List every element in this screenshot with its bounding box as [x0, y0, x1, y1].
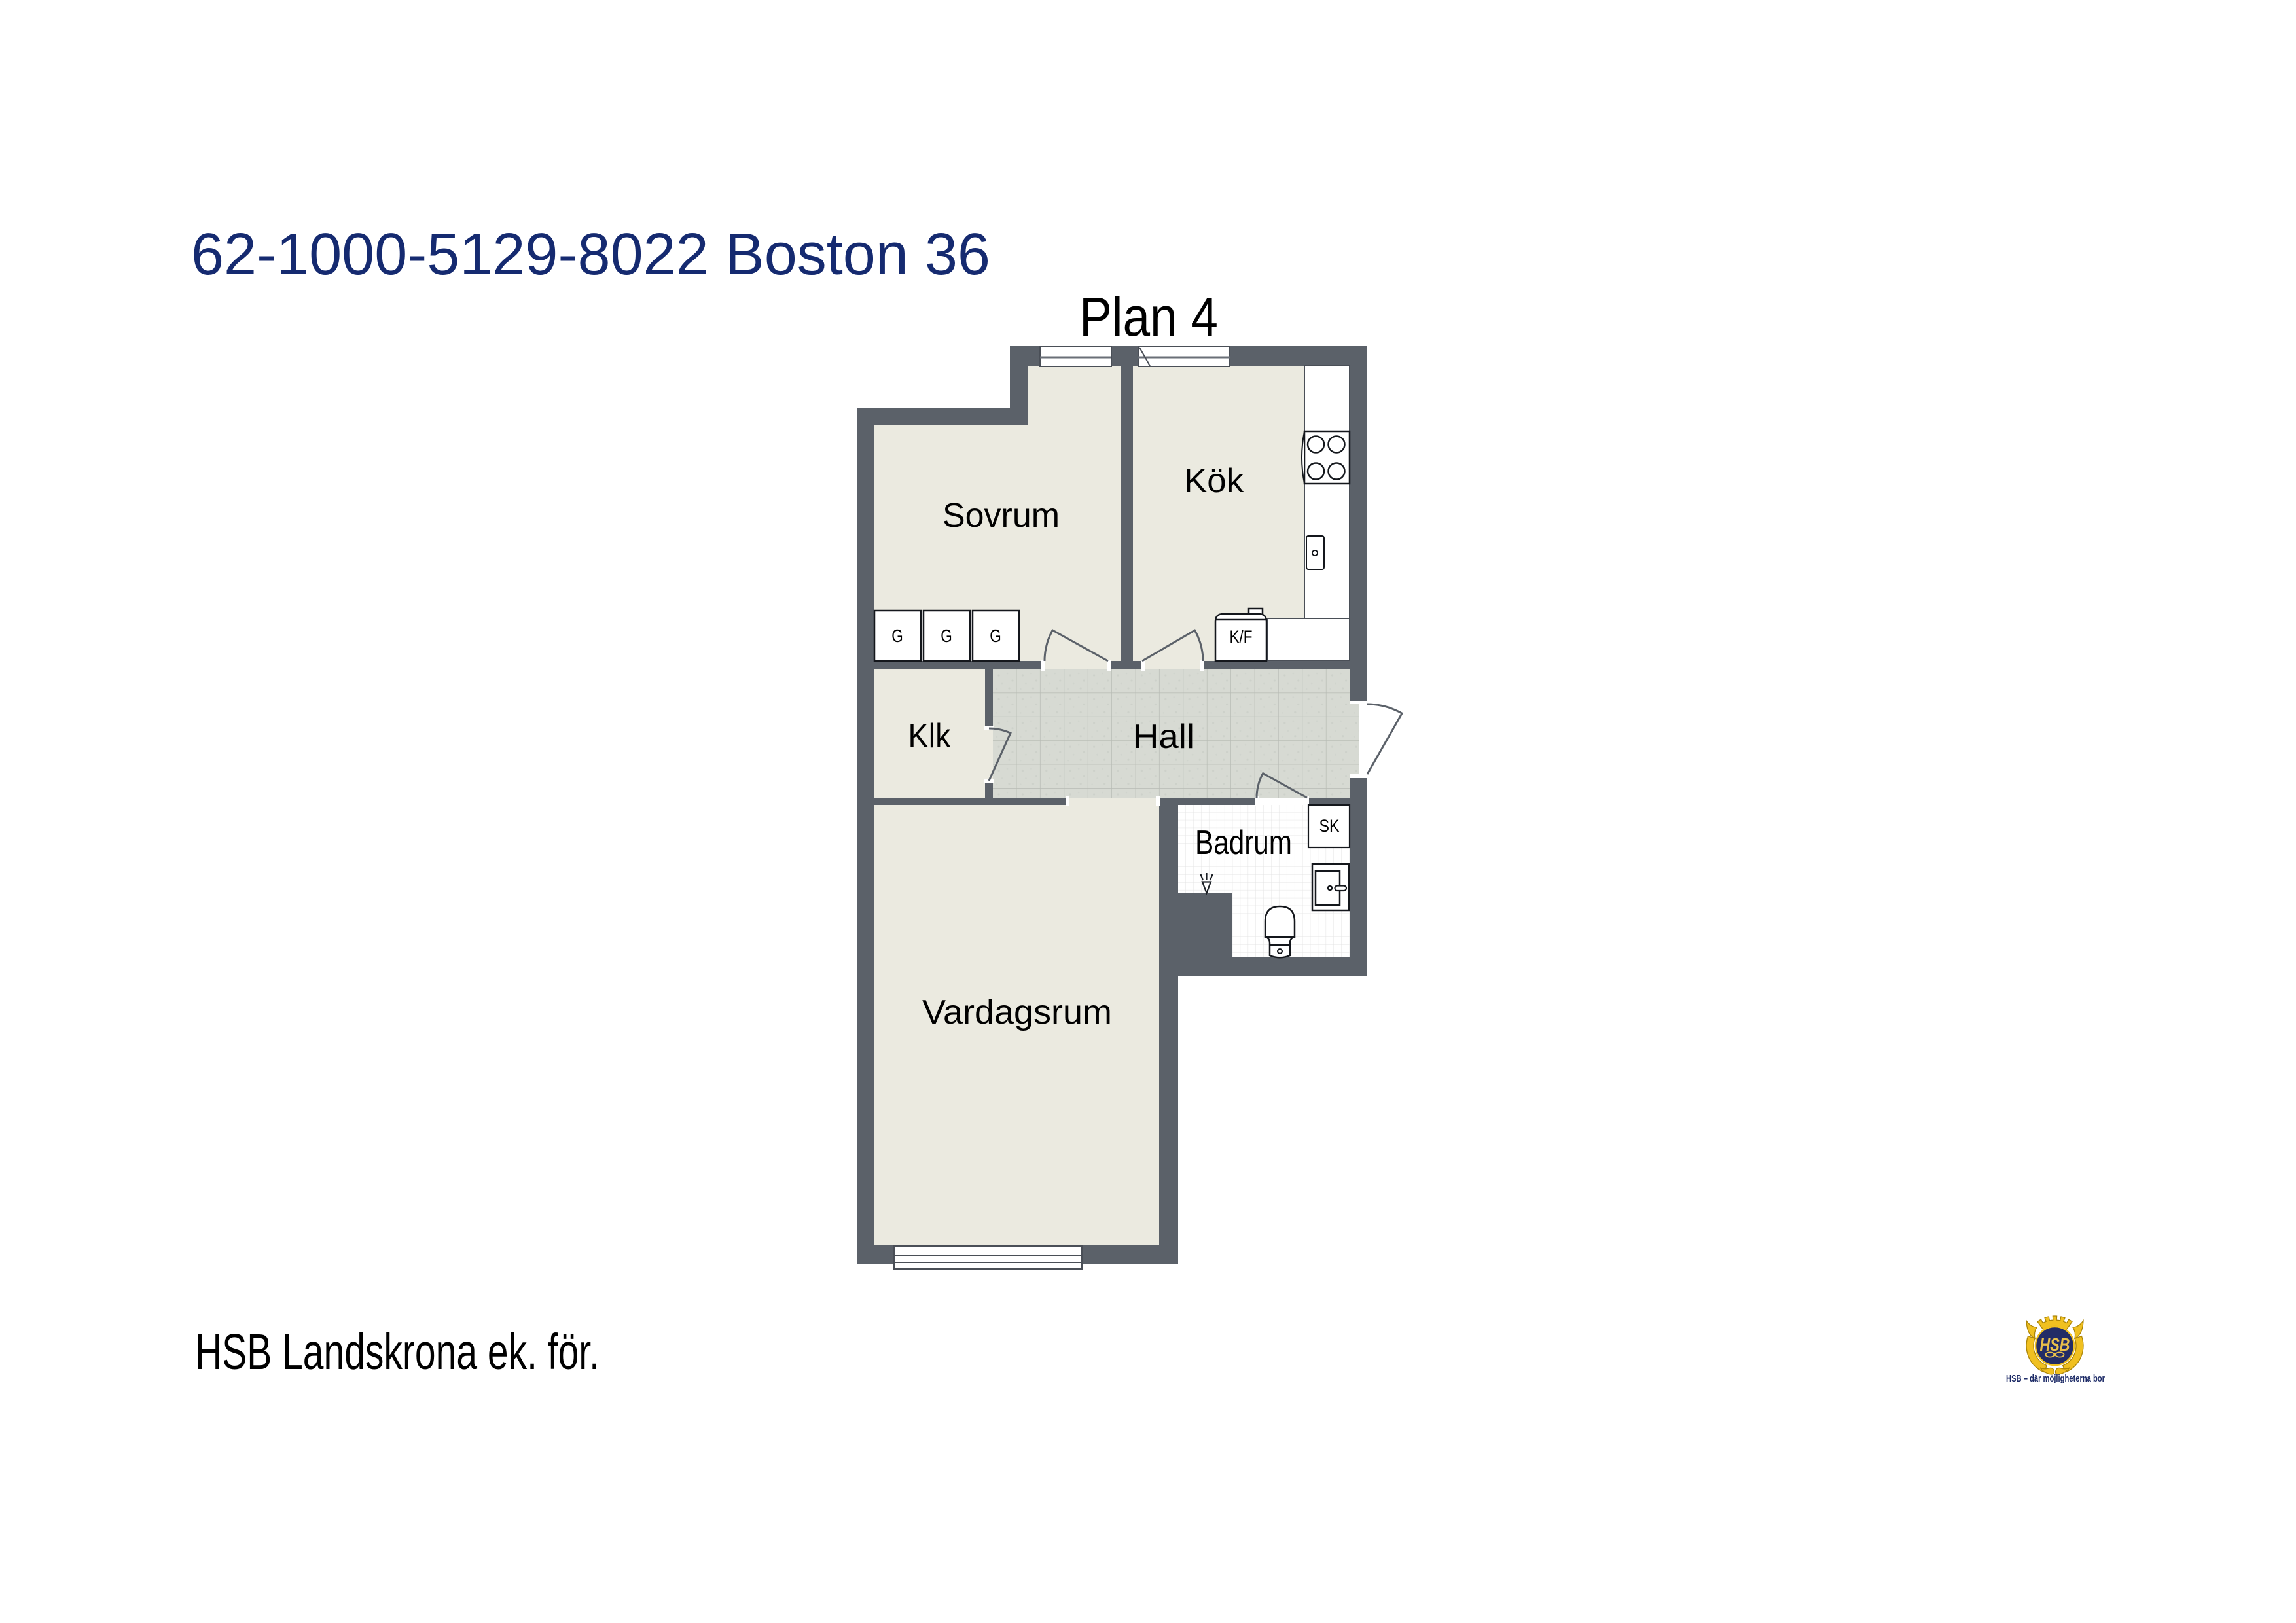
svg-text:HSB Landskrona ek. för.: HSB Landskrona ek. för.	[195, 1324, 600, 1380]
svg-text:Sovrum: Sovrum	[942, 497, 1060, 535]
svg-text:62-1000-5129-8022 Boston 36: 62-1000-5129-8022 Boston 36	[191, 222, 990, 287]
svg-text:Klk: Klk	[908, 717, 952, 755]
svg-text:Badrum: Badrum	[1195, 824, 1292, 862]
svg-text:HSB – där möjligheterna bor: HSB – där möjligheterna bor	[2006, 1373, 2105, 1384]
svg-text:Hall: Hall	[1133, 718, 1194, 756]
svg-text:Kök: Kök	[1184, 462, 1244, 500]
svg-text:K/F: K/F	[1230, 627, 1253, 647]
svg-text:HSB: HSB	[2040, 1334, 2070, 1355]
svg-text:G: G	[990, 626, 1001, 646]
svg-text:G: G	[941, 626, 952, 646]
svg-text:Plan 4: Plan 4	[1079, 286, 1218, 348]
svg-text:Vardagsrum: Vardagsrum	[922, 993, 1112, 1031]
svg-text:SK: SK	[1319, 816, 1340, 836]
svg-text:G: G	[891, 626, 903, 646]
